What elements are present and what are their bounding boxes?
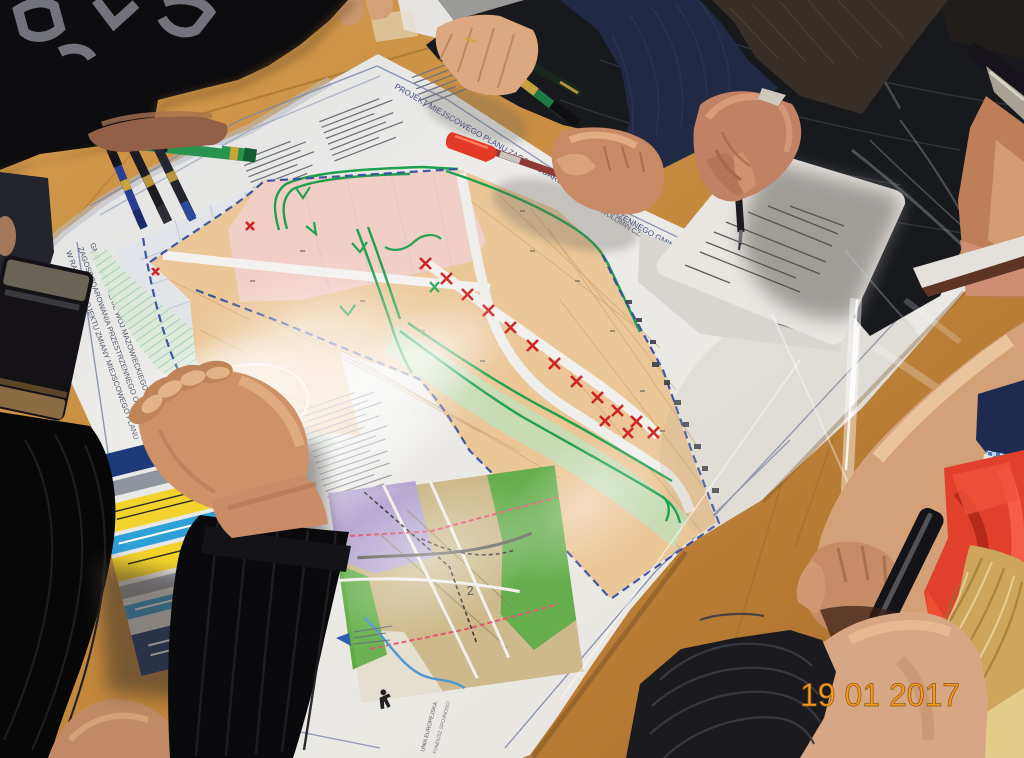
svg-text:19 01 2017: 19 01 2017 bbox=[800, 677, 960, 713]
